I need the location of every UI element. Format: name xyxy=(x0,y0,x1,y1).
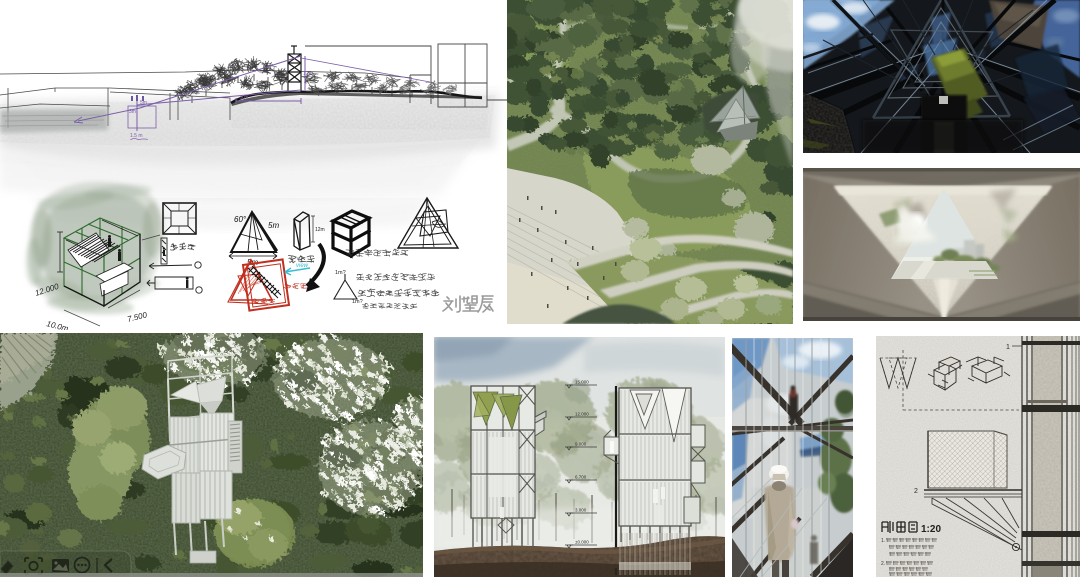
svg-text:12.000: 12.000 xyxy=(575,412,589,417)
svg-text:12m: 12m xyxy=(315,227,325,233)
svg-text:6.700: 6.700 xyxy=(575,475,587,480)
svg-text:±0.000: ±0.000 xyxy=(575,540,589,545)
svg-text:1.: 1. xyxy=(881,538,885,544)
svg-text:1:20: 1:20 xyxy=(921,524,941,535)
svg-text:1: 1 xyxy=(1006,344,1010,351)
svg-text:view: view xyxy=(296,263,309,269)
svg-text:1m?: 1m? xyxy=(335,270,346,276)
svg-text:2: 2 xyxy=(914,488,918,495)
svg-text:1m?: 1m? xyxy=(352,299,363,305)
svg-text:15.000: 15.000 xyxy=(575,380,589,385)
svg-text:12m: 12m xyxy=(303,71,313,77)
svg-text:9 m: 9 m xyxy=(240,95,248,101)
svg-text:2.: 2. xyxy=(881,561,885,567)
svg-text:5m: 5m xyxy=(268,221,279,230)
svg-text:3.000: 3.000 xyxy=(575,508,587,513)
svg-text:9.000: 9.000 xyxy=(575,442,587,447)
svg-text:3m: 3m xyxy=(129,109,136,115)
svg-text:60°: 60° xyxy=(234,215,247,224)
svg-text:1.5 m: 1.5 m xyxy=(130,133,143,139)
